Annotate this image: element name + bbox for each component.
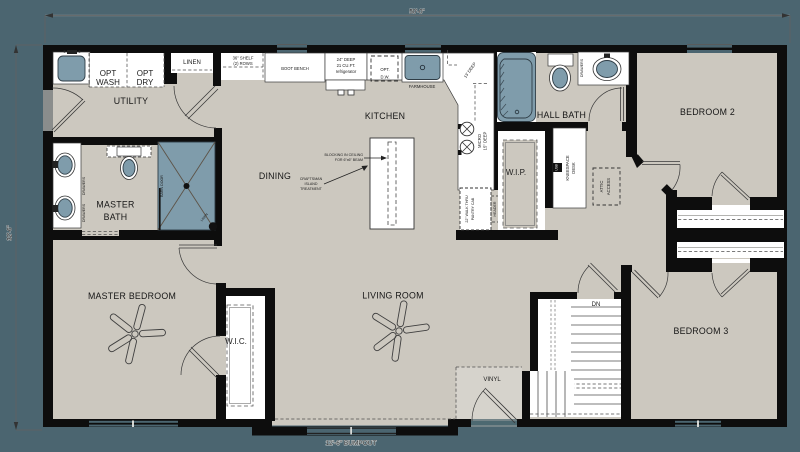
svg-text:24" DEEP: 24" DEEP	[337, 57, 356, 62]
svg-text:KITCHEN: KITCHEN	[365, 111, 405, 121]
svg-text:MASTER BEDROOM: MASTER BEDROOM	[88, 291, 176, 301]
svg-text:32'-6": 32'-6"	[8, 225, 14, 240]
svg-text:BLOCKING IN CEILING: BLOCKING IN CEILING	[324, 153, 363, 157]
svg-text:ATTIC: ATTIC	[599, 181, 604, 193]
svg-text:50'-0": 50'-0"	[409, 10, 424, 16]
svg-text:DN: DN	[592, 302, 601, 308]
svg-text:15" DEEP: 15" DEEP	[483, 131, 488, 150]
svg-text:(2) ROWS: (2) ROWS	[233, 61, 253, 66]
svg-text:USB: USB	[555, 164, 559, 171]
svg-text:22" WALK THRU: 22" WALK THRU	[465, 195, 469, 223]
svg-text:DRAWERS: DRAWERS	[580, 58, 584, 77]
svg-text:ACCESS: ACCESS	[606, 178, 611, 195]
svg-text:DINING: DINING	[259, 171, 291, 181]
svg-text:ISLAND: ISLAND	[305, 182, 318, 186]
svg-text:BATH: BATH	[104, 212, 128, 222]
svg-text:LIVING ROOM: LIVING ROOM	[362, 291, 423, 301]
svg-text:WASH: WASH	[96, 78, 120, 87]
svg-text:W.I.P.: W.I.P.	[506, 168, 526, 177]
svg-text:PANTRY CAB: PANTRY CAB	[471, 197, 475, 220]
svg-text:UTILITY: UTILITY	[114, 96, 149, 106]
svg-text:36" SHELF: 36" SHELF	[233, 56, 254, 61]
svg-text:TREATMENT: TREATMENT	[300, 187, 322, 191]
svg-text:D.W.: D.W.	[380, 75, 389, 80]
svg-text:12'-6" BUMPOUT: 12'-6" BUMPOUT	[326, 440, 377, 447]
svg-text:BEDROOM 2: BEDROOM 2	[680, 107, 735, 117]
svg-text:OPT: OPT	[100, 69, 117, 78]
svg-text:VINYL: VINYL	[483, 377, 501, 383]
svg-text:DRAWERS: DRAWERS	[82, 176, 86, 195]
svg-text:W.I.C.: W.I.C.	[225, 337, 247, 346]
svg-text:DRY: DRY	[137, 78, 154, 87]
svg-text:MASTER: MASTER	[96, 200, 134, 210]
svg-text:OPT: OPT	[137, 69, 154, 78]
svg-text:FOR 6"x6" BEAM: FOR 6"x6" BEAM	[335, 158, 363, 162]
svg-text:HEADER: HEADER	[493, 201, 497, 216]
svg-text:CRAFTSMAN: CRAFTSMAN	[300, 177, 323, 181]
svg-text:BOOT BENCH: BOOT BENCH	[281, 66, 309, 71]
svg-text:refrigerator: refrigerator	[336, 69, 357, 74]
svg-text:HALL BATH: HALL BATH	[537, 110, 586, 120]
svg-text:DRAWERS: DRAWERS	[82, 203, 86, 222]
svg-text:21 CU.FT.: 21 CU.FT.	[337, 63, 356, 68]
svg-text:LINEN: LINEN	[183, 60, 201, 66]
svg-text:BARN DOOR: BARN DOOR	[160, 175, 164, 197]
svg-text:KNEESPACE: KNEESPACE	[565, 155, 570, 180]
svg-text:DESK: DESK	[571, 162, 576, 174]
svg-text:MICRO: MICRO	[477, 133, 482, 148]
svg-text:BEDROOM 3: BEDROOM 3	[673, 326, 728, 336]
svg-text:OPT.: OPT.	[380, 67, 389, 72]
svg-text:FARMHOUSE: FARMHOUSE	[409, 84, 436, 89]
